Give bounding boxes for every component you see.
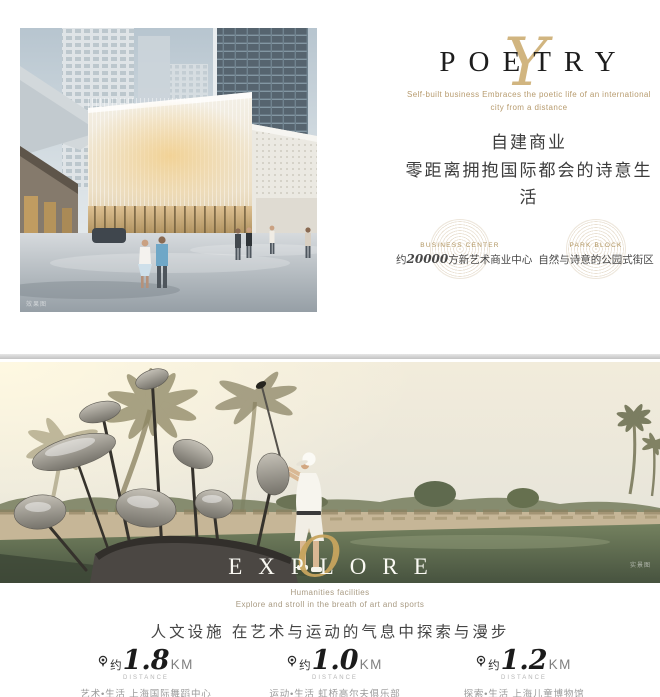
distance-desc: 运动•生活 虹桥高尔夫俱乐部	[244, 686, 426, 697]
distance-label: DISTANCE	[55, 675, 237, 681]
building-render-photo: 效果图	[20, 28, 317, 312]
render-watermark: 效果图	[26, 299, 47, 308]
explore-title-block: O EXPLORE	[0, 554, 660, 580]
distance-desc: 探索•生活 上海儿童博物馆	[433, 686, 615, 697]
golf-watermark: 实景图	[630, 560, 651, 569]
badges-row: BUSINESS CENTER 约20000方新艺术商业中心 PARK BLOC…	[396, 219, 660, 281]
promo-page: 效果图 Y POETRY Self-built business Embrace…	[0, 0, 660, 697]
poetry-subtitle: Self-built business Embraces the poetic …	[400, 88, 658, 114]
location-pin-icon	[476, 655, 486, 668]
section-divider	[0, 354, 660, 359]
location-pin-icon	[287, 655, 297, 668]
poetry-heading-zh: 自建商业 零距离拥抱国际都会的诗意生活	[400, 129, 658, 211]
golf-photo: O EXPLORE 实景图	[0, 362, 660, 583]
poetry-block: Y POETRY Self-built business Embraces th…	[400, 46, 658, 211]
badge-park-block: PARK BLOCK 自然与诗意的公园式街区	[532, 219, 660, 281]
badge-business-center: BUSINESS CENTER 约20000方新艺术商业中心	[396, 219, 524, 281]
distance-item-children-museum: 约1.2KM DISTANCE 探索•生活 上海儿童博物馆	[433, 649, 615, 697]
distance-desc: 艺术•生活 上海国际舞蹈中心	[55, 686, 237, 697]
distance-label: DISTANCE	[433, 675, 615, 681]
explore-title: EXPLORE	[12, 554, 660, 580]
location-pin-icon	[98, 655, 108, 668]
building-scene-illustration	[20, 28, 317, 312]
distance-item-golf-club: 约1.0KM DISTANCE 运动•生活 虹桥高尔夫俱乐部	[244, 649, 426, 697]
explore-subtitle: Humanities facilities Explore and stroll…	[0, 587, 660, 612]
distance-label: DISTANCE	[244, 675, 426, 681]
explore-heading-zh: 人文设施 在艺术与运动的气息中探索与漫步	[0, 620, 660, 642]
poetry-title: POETRY	[410, 46, 658, 79]
distance-item-dance-center: 约1.8KM DISTANCE 艺术•生活 上海国际舞蹈中心	[55, 649, 237, 697]
distances-row: 约1.8KM DISTANCE 艺术•生活 上海国际舞蹈中心 约1.0KM DI…	[55, 649, 615, 697]
